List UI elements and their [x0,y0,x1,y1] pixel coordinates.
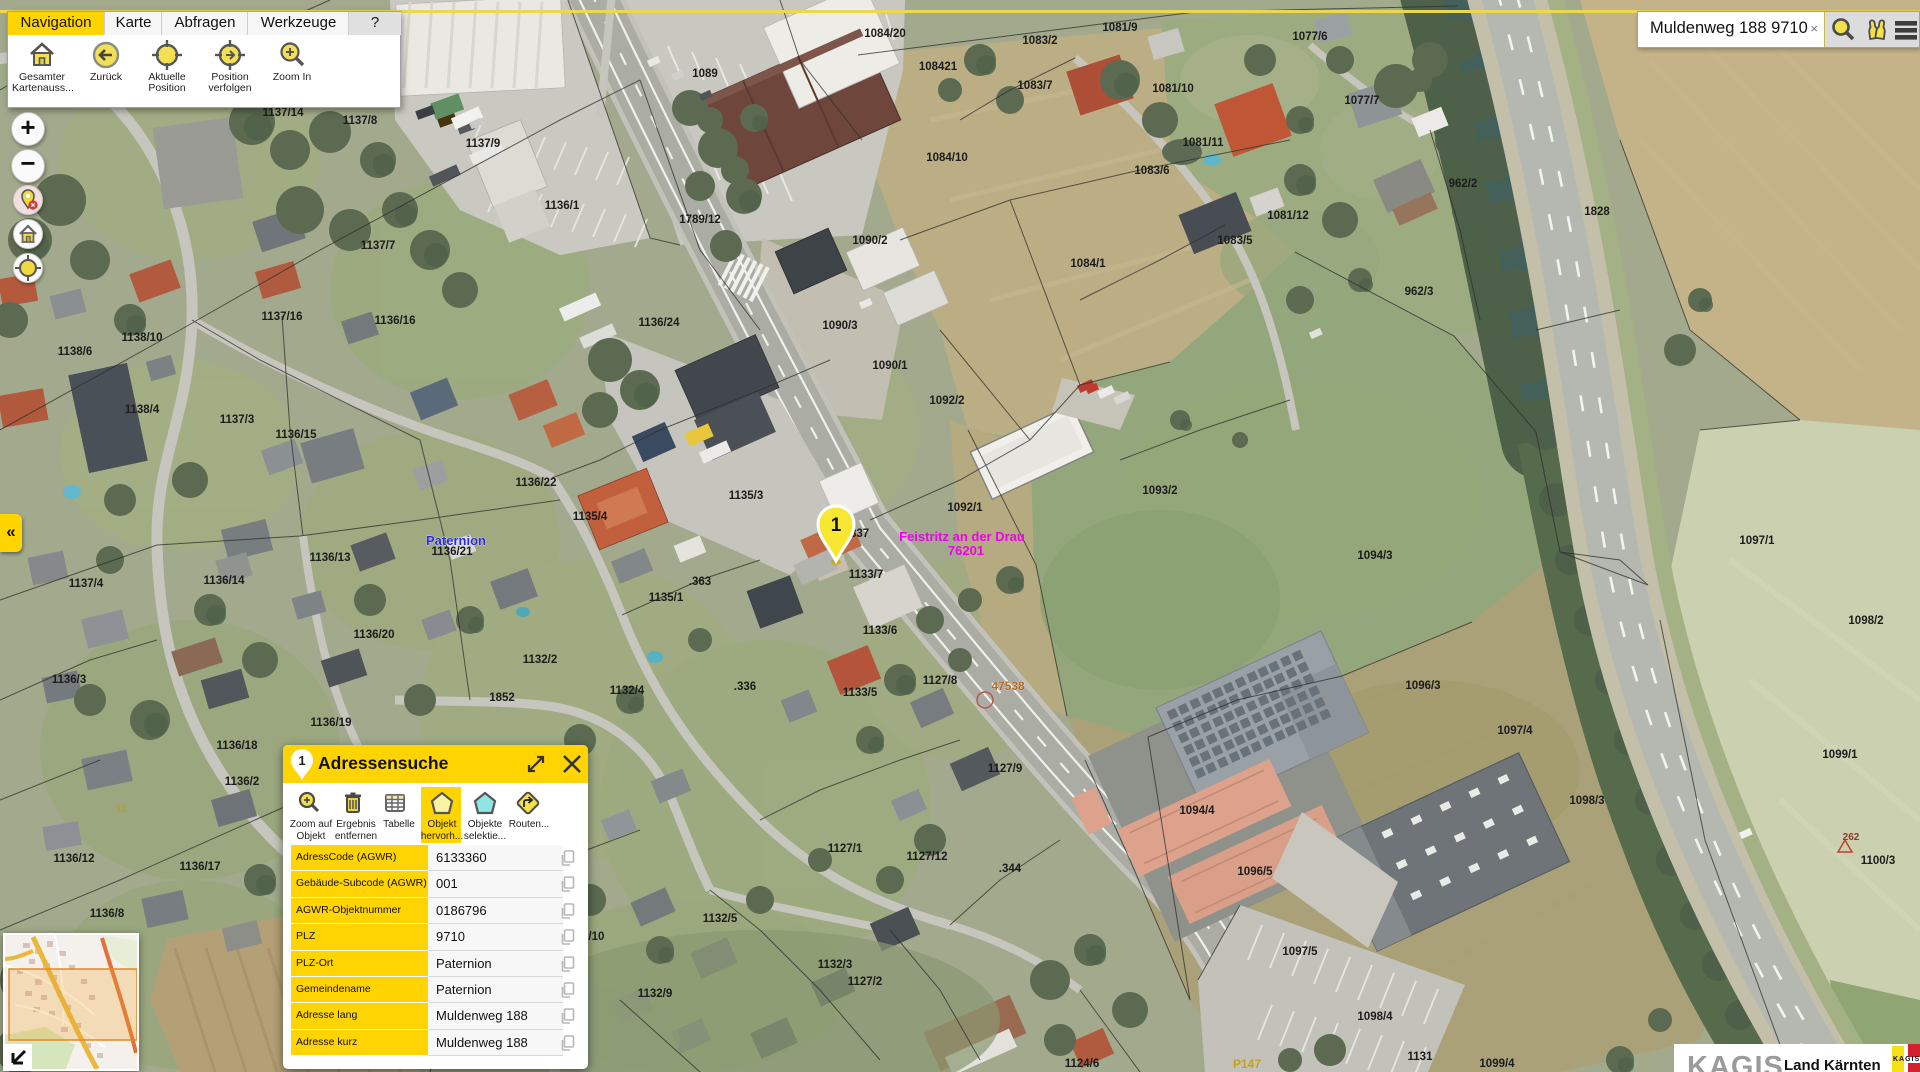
svg-text:1127/9: 1127/9 [988,763,1023,775]
svg-text:1127/2: 1127/2 [848,976,883,988]
svg-text:1083/6: 1083/6 [1134,165,1169,177]
svg-text:1137/4: 1137/4 [69,578,104,590]
svg-text:1100/3: 1100/3 [1861,855,1896,867]
svg-text:1137/16: 1137/16 [262,311,303,323]
svg-text:1852: 1852 [489,692,515,704]
svg-text:11: 11 [116,804,127,815]
svg-text:1093/2: 1093/2 [1142,485,1177,497]
svg-text:1097/1: 1097/1 [1739,535,1775,547]
svg-text:1136/22: 1136/22 [516,477,557,489]
svg-text:1084/10: 1084/10 [926,152,968,164]
svg-text:1084/1: 1084/1 [1070,258,1106,270]
svg-text:1136/13: 1136/13 [310,552,351,564]
svg-text:1098/3: 1098/3 [1569,795,1604,807]
svg-text:.344: .344 [999,863,1022,875]
svg-text:1099/4: 1099/4 [1479,1058,1515,1070]
svg-text:1083/2: 1083/2 [1022,35,1057,47]
svg-text:1137/14: 1137/14 [263,107,305,119]
svg-text:1089: 1089 [692,68,718,80]
svg-text:1127/12: 1127/12 [907,851,948,863]
svg-text:1081/11: 1081/11 [1183,137,1225,149]
svg-text:1136/2: 1136/2 [225,776,260,788]
svg-text:1083/5: 1083/5 [1217,235,1253,247]
svg-text:1136/14: 1136/14 [204,575,246,587]
svg-text:1133/7: 1133/7 [849,569,884,581]
svg-text:1131: 1131 [1408,1051,1434,1063]
svg-text:1136/24: 1136/24 [639,317,681,329]
svg-text:1096/5: 1096/5 [1237,866,1273,878]
svg-text:1132/5: 1132/5 [703,913,738,925]
svg-text:1081/12: 1081/12 [1267,210,1309,222]
svg-text:1097/4: 1097/4 [1497,725,1533,737]
svg-text:1099/1: 1099/1 [1822,749,1858,761]
svg-text:1077/6: 1077/6 [1292,31,1327,43]
svg-text:1094/4: 1094/4 [1179,805,1215,817]
svg-text:1132/9: 1132/9 [638,988,673,1000]
svg-text:1136/16: 1136/16 [375,315,416,327]
svg-text:108421: 108421 [919,61,958,73]
svg-text:1137/9: 1137/9 [466,138,501,150]
svg-text:1090/3: 1090/3 [822,320,857,332]
svg-text:1132/4: 1132/4 [610,685,645,697]
svg-text:.336: .336 [734,681,756,693]
svg-text:1789/12: 1789/12 [679,214,721,226]
svg-text:1135/4: 1135/4 [573,511,608,523]
svg-text:1138/10: 1138/10 [122,332,163,344]
svg-text:1124/6: 1124/6 [1065,1058,1100,1070]
svg-text:1098/2: 1098/2 [1848,615,1883,627]
svg-text:1137/3: 1137/3 [220,414,255,426]
svg-text:.363: .363 [689,576,711,588]
svg-text:1136/20: 1136/20 [354,629,395,641]
svg-text:1132/3: 1132/3 [818,959,853,971]
svg-text:1138/6: 1138/6 [58,346,93,358]
svg-text:1: 1 [298,753,305,768]
svg-text:1133/6: 1133/6 [863,625,898,637]
svg-text:Feistritz an der Drau: Feistritz an der Drau [899,529,1025,544]
svg-text:1081/9: 1081/9 [1102,22,1137,34]
svg-text:76201: 76201 [948,543,984,558]
svg-text:1135/1: 1135/1 [649,592,684,604]
svg-text:1083/7: 1083/7 [1017,80,1052,92]
svg-text:1138/4: 1138/4 [125,404,160,416]
svg-text:1081/10: 1081/10 [1152,83,1194,95]
svg-text:P147: P147 [1233,1057,1261,1071]
svg-text:1077/7: 1077/7 [1344,95,1379,107]
svg-text:1084/20: 1084/20 [864,28,906,40]
svg-text:962/3: 962/3 [1405,286,1434,298]
svg-text:1094/3: 1094/3 [1357,550,1392,562]
svg-text:1136/17: 1136/17 [180,861,221,873]
svg-text:962/2: 962/2 [1449,178,1478,190]
svg-text:1136/3: 1136/3 [52,674,87,686]
svg-text:1092/1: 1092/1 [947,502,983,514]
svg-text:Paternion: Paternion [426,533,486,548]
svg-text:1135/3: 1135/3 [729,490,764,502]
svg-text:1132/2: 1132/2 [523,654,558,666]
svg-text:1090/1: 1090/1 [872,360,908,372]
svg-text:1127/8: 1127/8 [923,675,958,687]
svg-text:1098/4: 1098/4 [1357,1011,1393,1023]
svg-text:1133/5: 1133/5 [843,687,878,699]
svg-text:1: 1 [831,515,842,536]
svg-text:1096/3: 1096/3 [1405,680,1440,692]
svg-text:1137/8: 1137/8 [343,115,378,127]
svg-text:1136/18: 1136/18 [217,740,259,752]
svg-text:1137/7: 1137/7 [361,240,396,252]
svg-text:1127/1: 1127/1 [828,843,863,855]
svg-text:1092/2: 1092/2 [929,395,964,407]
svg-text:1828: 1828 [1584,206,1610,218]
svg-text:1090/2: 1090/2 [852,235,887,247]
svg-text:47538: 47538 [991,679,1025,693]
svg-text:1097/5: 1097/5 [1282,946,1318,958]
svg-text:1136/1: 1136/1 [545,200,580,212]
svg-text:1136/8: 1136/8 [90,908,125,920]
svg-text:1136/19: 1136/19 [311,717,352,729]
svg-text:1136/12: 1136/12 [54,853,95,865]
svg-text:1136/15: 1136/15 [276,429,318,441]
